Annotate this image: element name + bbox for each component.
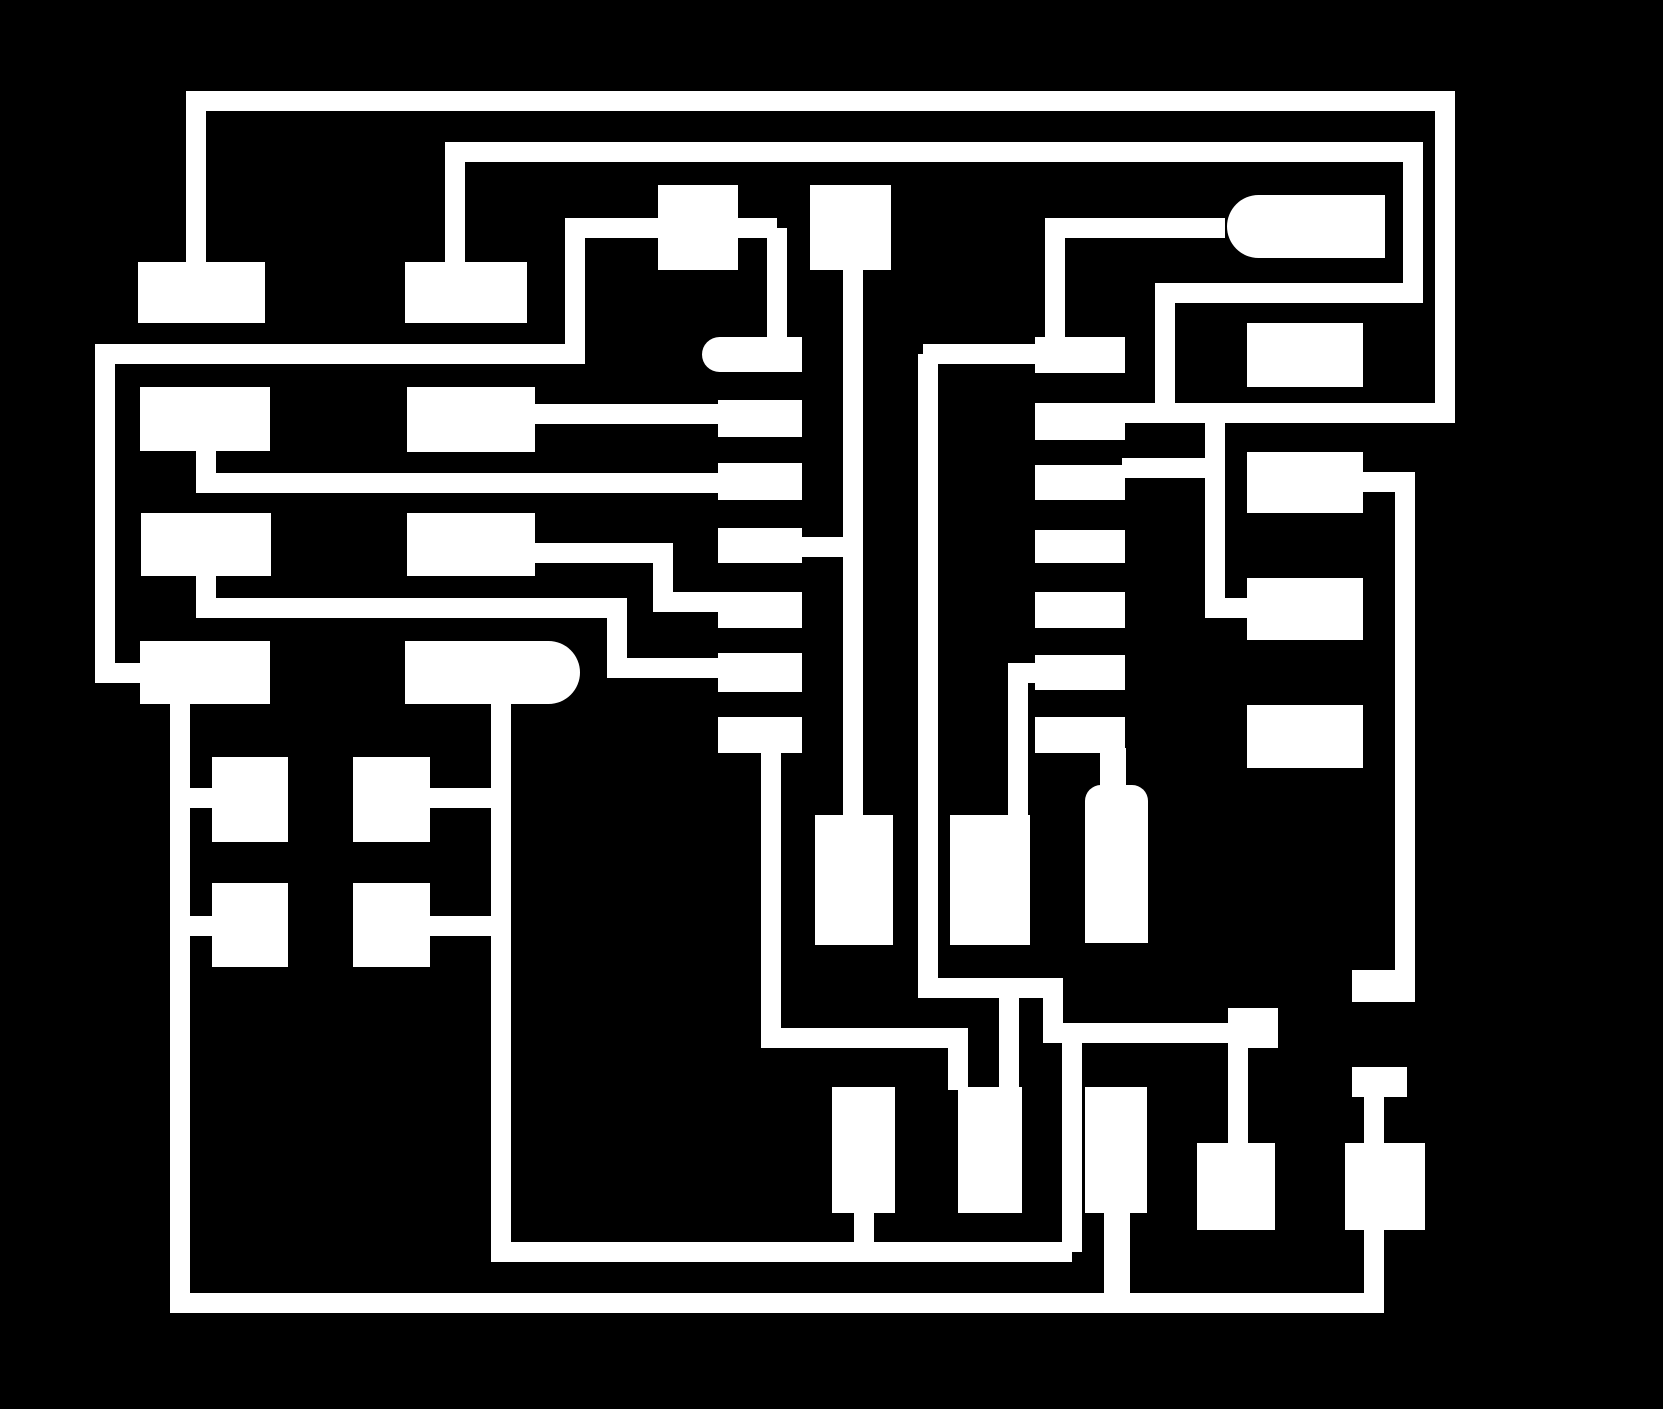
square-pad-1: [212, 757, 288, 842]
pcb-board: [0, 0, 1663, 1409]
mid-left-pad-2: [718, 400, 802, 437]
lic-left-pad-4: [140, 641, 270, 704]
lic-left-pad-3: [141, 513, 271, 576]
bottom-pad-3: [1085, 1087, 1147, 1213]
lic-right-pad-1: [405, 262, 527, 323]
mid-left-pad-4: [718, 528, 802, 563]
top-right-pill-pad: [1227, 195, 1385, 258]
mid-right-pad-5: [1035, 592, 1125, 628]
tall-pad-2: [950, 815, 1030, 945]
bottle-pad-neck: [1100, 748, 1126, 790]
lic-left-pad-2: [140, 387, 270, 451]
right-col-pad-1: [1247, 323, 1363, 387]
bottom-pad-4: [1197, 1143, 1275, 1230]
mid-left-pad-3: [718, 463, 802, 500]
mid-right-pad-3: [1035, 465, 1125, 500]
mid-left-pad-6: [718, 653, 802, 692]
mid-left-pill-pad-1: [702, 337, 802, 372]
bottom-pad-2: [958, 1087, 1022, 1213]
right-col-pad-4: [1247, 705, 1363, 768]
mid-left-pad-7: [718, 717, 802, 753]
lic-right-pad-4-pill: [405, 641, 580, 704]
square-pad-2: [353, 757, 430, 842]
lic-right-pad-2: [407, 387, 535, 452]
right-col-pad-3: [1247, 578, 1363, 640]
mid-right-pad-6: [1035, 655, 1125, 690]
right-col-pad-2: [1247, 452, 1363, 513]
bottom-pad-1: [832, 1087, 895, 1213]
top-pad-b: [810, 185, 891, 270]
square-pad-3: [212, 883, 288, 967]
mid-right-pad-1: [1035, 337, 1125, 373]
tall-pad-1: [815, 815, 893, 945]
pcb-layout-svg: [0, 0, 1663, 1409]
square-pad-4: [353, 883, 430, 967]
bottom-pad-5: [1345, 1143, 1425, 1230]
lic-right-pad-3: [407, 513, 535, 576]
mid-right-pad-7: [1035, 717, 1125, 753]
mid-right-pad-4: [1035, 530, 1125, 563]
mid-right-pad-2: [1035, 403, 1125, 440]
lic-left-pad-1: [138, 262, 265, 323]
bottle-pad-body: [1085, 785, 1148, 943]
mid-left-pad-5: [718, 592, 802, 628]
